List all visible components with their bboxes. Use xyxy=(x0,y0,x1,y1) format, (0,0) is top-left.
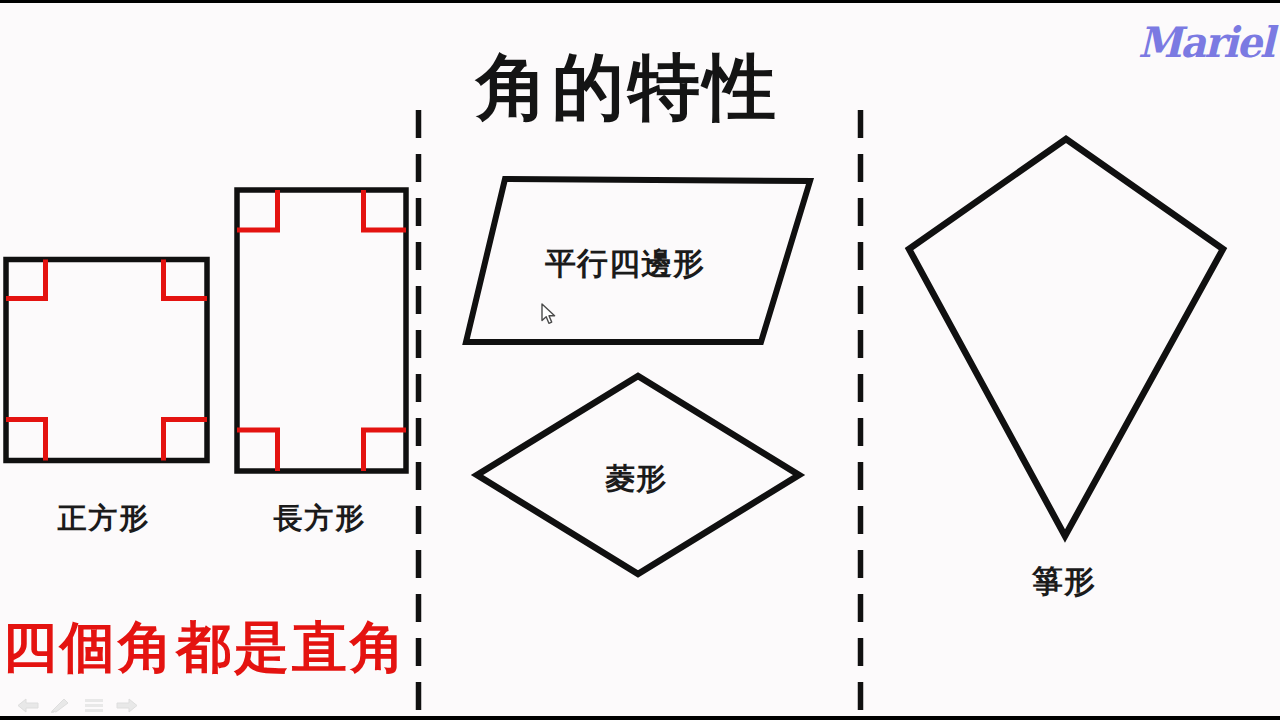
next-slide-button[interactable] xyxy=(115,696,139,714)
previous-slide-button[interactable] xyxy=(16,696,40,714)
rectangle-label: 長方形 xyxy=(274,499,367,539)
parallelogram-label: 平行四邊形 xyxy=(545,243,705,285)
next-arrow-icon xyxy=(116,698,138,713)
presentation-slide: 角的特性 Mariel 正方形 長方形 平行四邊形 菱形 箏形 四個角都是直角 xyxy=(0,0,1280,720)
kite-shape xyxy=(909,139,1223,536)
rectangle-right-angle-marks xyxy=(237,190,406,471)
slideshow-toolbar xyxy=(16,696,139,714)
rectangle-shape xyxy=(237,190,406,471)
slideshow-menu-button[interactable] xyxy=(82,696,106,714)
right-angles-note: 四個角都是直角 xyxy=(2,611,408,685)
square-shape xyxy=(6,260,207,461)
pen-tool-button[interactable] xyxy=(49,696,73,714)
kite-label: 箏形 xyxy=(1032,561,1096,603)
previous-arrow-icon xyxy=(17,698,39,713)
square-label: 正方形 xyxy=(58,499,151,539)
rhombus-label: 菱形 xyxy=(605,459,667,500)
square-right-angle-marks xyxy=(6,260,207,461)
pen-icon xyxy=(50,697,72,713)
mouse-cursor xyxy=(541,303,557,325)
menu-icon xyxy=(84,698,104,713)
